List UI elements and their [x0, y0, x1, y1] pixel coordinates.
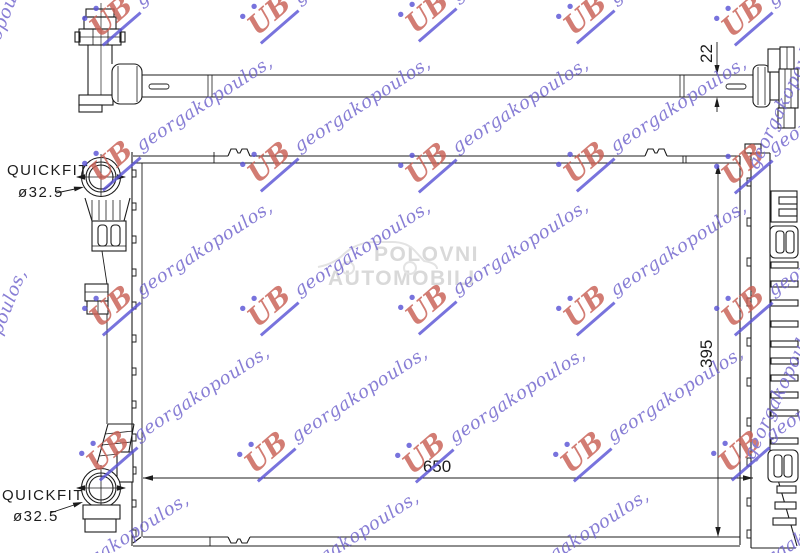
radiator-side-profile — [745, 144, 798, 548]
quickfit-top-text: QUICKFIT — [7, 162, 89, 179]
quickfit-label-bottom: QUICKFIT ø32.5 — [2, 487, 84, 525]
dimension-395: 395 — [697, 164, 721, 537]
dimension-395-label: 395 — [697, 340, 716, 368]
drawing-canvas: 22 — [0, 0, 800, 553]
radiator-technical-drawing: POLOVNI AUTOMOBILI — [0, 0, 800, 553]
dimension-650: 650 — [143, 457, 753, 481]
dimension-650-label: 650 — [423, 457, 451, 476]
radiator-front-view — [132, 149, 740, 546]
quickfit-label-top: QUICKFIT ø32.5 — [7, 162, 89, 201]
quickfit-inlet-top — [76, 154, 130, 424]
dimension-22: 22 — [697, 42, 720, 112]
quickfit-inlet-bottom — [76, 424, 134, 532]
upper-hose-assembly — [75, 3, 798, 128]
quickfit-bottom-diameter: ø32.5 — [13, 508, 59, 525]
dimension-22-label: 22 — [697, 44, 716, 63]
quickfit-bottom-text: QUICKFIT — [2, 487, 84, 504]
